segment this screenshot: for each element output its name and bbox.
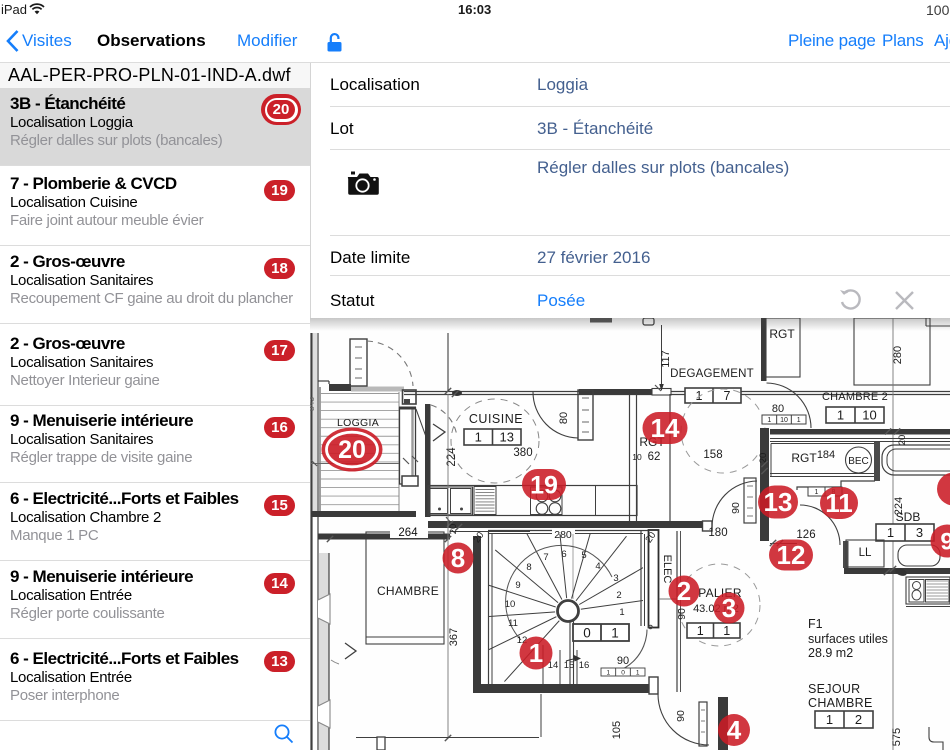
svg-text:16: 16 [579,660,590,671]
svg-text:CHAMBRE 2: CHAMBRE 2 [822,391,888,403]
svg-text:1: 1 [767,417,771,424]
svg-text:4: 4 [595,561,600,572]
svg-text:8: 8 [451,543,465,573]
svg-text:380: 380 [513,447,532,459]
svg-text:1: 1 [619,607,624,618]
svg-text:14: 14 [651,413,680,443]
svg-text:90: 90 [617,655,629,667]
svg-text:10: 10 [862,408,876,423]
svg-text:1: 1 [607,669,611,676]
svg-text:SDB: SDB [896,510,921,524]
svg-text:7: 7 [724,389,731,403]
svg-text:19: 19 [530,472,558,500]
svg-text:20: 20 [897,435,908,446]
svg-text:0: 0 [583,626,591,641]
svg-text:5: 5 [581,550,586,561]
svg-text:80: 80 [772,403,784,415]
svg-text:SEJOUR: SEJOUR [808,682,861,696]
svg-text:CHAMBRE: CHAMBRE [377,584,439,598]
svg-text:4: 4 [727,715,742,745]
svg-text:1: 1 [837,408,844,423]
svg-text:1: 1 [815,489,819,496]
svg-text:1: 1 [475,430,482,445]
svg-text:1: 1 [887,525,894,540]
svg-text:1: 1 [723,624,730,638]
svg-text:LL: LL [859,547,872,559]
svg-text:13: 13 [500,430,514,445]
svg-text:62: 62 [648,451,661,463]
svg-text:2: 2 [616,590,621,601]
svg-text:11: 11 [825,488,853,518]
svg-text:10: 10 [632,452,642,462]
svg-text:105: 105 [611,721,623,739]
svg-text:DEGAGEMENT: DEGAGEMENT [670,368,754,380]
svg-text:9: 9 [515,580,520,591]
svg-text:CUISINE: CUISINE [469,412,523,426]
svg-text:RGT: RGT [791,451,817,465]
svg-text:ELEC: ELEC [661,555,673,584]
svg-text:28.9 m2: 28.9 m2 [808,646,853,660]
svg-text:90: 90 [730,502,742,514]
svg-text:6: 6 [561,549,566,560]
svg-text:LOGGIA: LOGGIA [337,417,379,429]
svg-text:1: 1 [697,624,704,638]
svg-text:280: 280 [892,346,904,364]
svg-text:184: 184 [817,449,835,461]
svg-text:2: 2 [855,712,862,727]
svg-text:2: 2 [677,576,691,606]
svg-text:8: 8 [526,562,531,573]
svg-text:CHAMBRE: CHAMBRE [808,696,873,710]
svg-text:3: 3 [613,573,618,584]
svg-text:20: 20 [338,436,366,464]
svg-text:90: 90 [676,608,688,620]
svg-text:surfaces utiles: surfaces utiles [808,632,888,646]
svg-text:BEC: BEC [848,456,869,467]
svg-text:1: 1 [826,712,833,727]
svg-text:F1: F1 [808,617,823,631]
svg-text:3: 3 [722,593,736,623]
svg-text:158: 158 [703,449,722,461]
svg-text:117: 117 [660,350,672,368]
svg-text:7: 7 [543,552,548,563]
svg-text:13: 13 [764,487,793,517]
svg-text:90: 90 [675,710,687,722]
svg-text:1: 1 [611,626,619,641]
svg-text:80: 80 [558,412,570,424]
svg-text:1: 1 [797,417,801,424]
svg-text:1: 1 [529,638,543,668]
svg-text:575: 575 [891,728,903,746]
svg-text:843: 843 [310,397,316,411]
svg-text:11: 11 [508,618,518,629]
svg-text:1: 1 [636,669,640,676]
svg-text:15: 15 [564,660,575,671]
svg-text:280: 280 [554,529,572,541]
svg-text:12: 12 [777,540,806,570]
svg-text:367: 367 [448,628,460,646]
svg-text:180: 180 [708,527,727,539]
svg-text:9: 9 [940,528,950,555]
svg-text:264: 264 [398,527,418,539]
svg-text:0: 0 [621,669,625,676]
svg-text:10: 10 [505,599,516,610]
svg-text:10: 10 [780,417,788,424]
svg-text:3: 3 [916,525,923,540]
